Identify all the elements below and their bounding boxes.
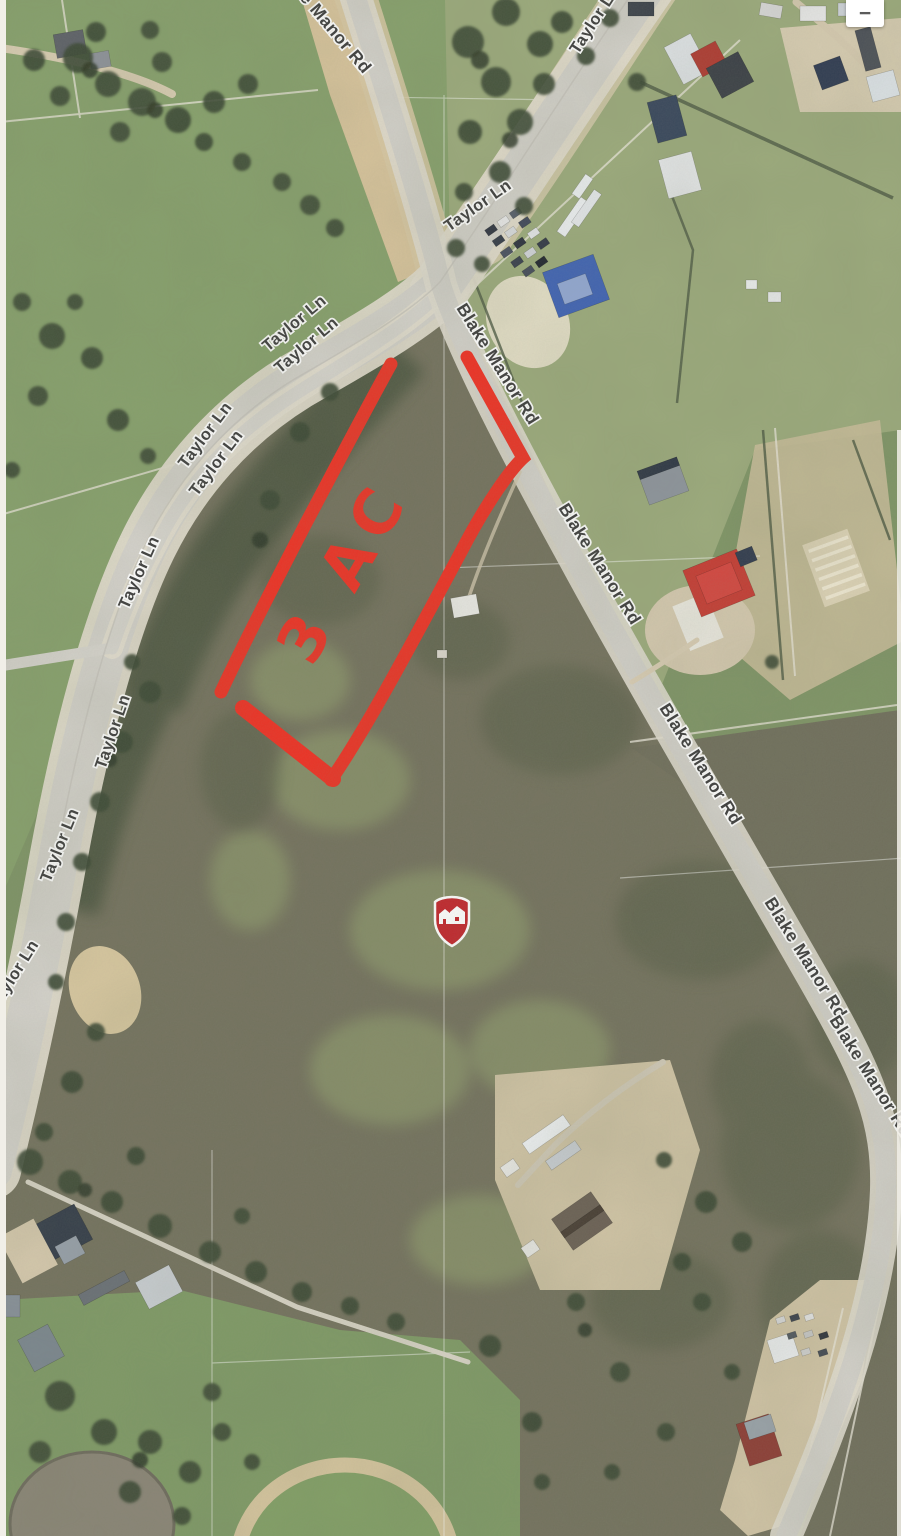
right-edge-strip (897, 430, 901, 1536)
photo-grain-overlay (0, 0, 901, 1536)
satellite-imagery: 3 AC Blake Manor Rd Taylor Ln Taylor Ln … (0, 0, 901, 1536)
zoom-out-button[interactable]: − (846, 0, 884, 27)
left-edge-strip (0, 0, 6, 1536)
map-canvas[interactable]: 3 AC Blake Manor Rd Taylor Ln Taylor Ln … (0, 0, 901, 1536)
minus-icon: − (859, 3, 871, 24)
